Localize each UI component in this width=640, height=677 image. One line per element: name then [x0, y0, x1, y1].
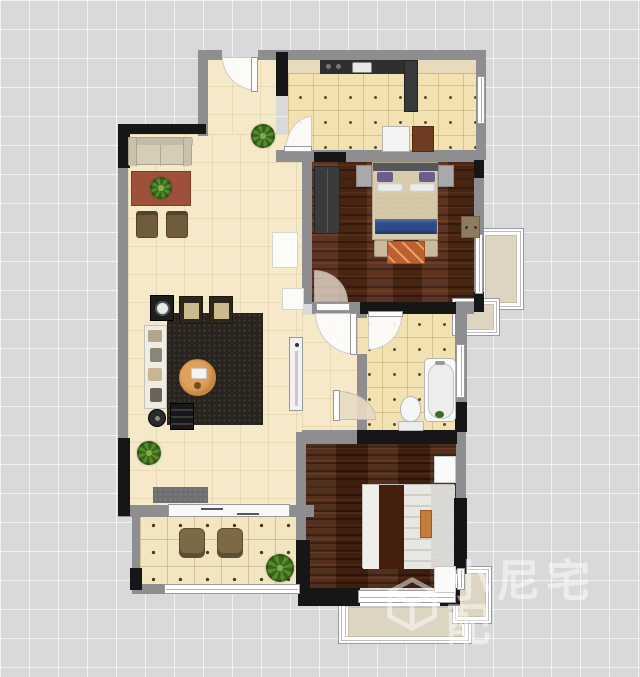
toilet: [398, 396, 422, 430]
wall-black-kitchen-divider: [276, 52, 288, 96]
dresser-knob: [474, 226, 477, 229]
shelf-item: [150, 348, 162, 362]
stove-burner: [326, 64, 331, 69]
balcony-window: [164, 584, 300, 594]
bed2-sheet: [363, 485, 379, 569]
nightstand-bed2-bottom: [434, 566, 456, 593]
plant-living-top: [251, 124, 275, 148]
doormat: [153, 487, 208, 503]
plant-balcony: [266, 554, 294, 582]
bedroom2-right-window: [457, 568, 465, 590]
balcony-sliding-door: [168, 504, 290, 517]
kitchen-door-leaf: [284, 146, 312, 152]
stool-1: [136, 211, 158, 238]
dresser-master: [461, 216, 480, 238]
round-dining-table: [179, 359, 216, 396]
wardrobe-seam: [327, 169, 328, 233]
table-plate: [191, 368, 207, 379]
wall-bath-left: [357, 354, 367, 432]
wardrobe: [314, 166, 340, 234]
sofa: [128, 137, 192, 165]
toilet-bowl: [400, 396, 421, 422]
bay-window-master-right-fill: [485, 235, 517, 303]
floorplan-canvas: 小尼宅配: [0, 0, 640, 677]
bedroom2-door-leaf: [333, 390, 340, 421]
shelf-item: [148, 368, 162, 381]
hall-cabinet-1: [272, 232, 298, 268]
chair-cushion: [184, 303, 199, 319]
wicker-chair-1: [179, 528, 205, 558]
bed-second: [362, 484, 454, 568]
pillow-white-left: [377, 183, 403, 192]
piano-cabinet: [170, 403, 194, 430]
hallway-door-leaf: [350, 313, 357, 355]
bathroom-window: [456, 344, 465, 398]
bed2-pillows: [431, 485, 455, 569]
kitchen-sink: [352, 62, 372, 73]
plant-living-bottom: [137, 441, 161, 465]
bathtub-faucet: [435, 361, 445, 365]
wall-bedroom1-left: [302, 160, 312, 304]
coffee-table-plant: [150, 177, 172, 199]
sofa-seam: [160, 145, 161, 166]
fridge: [412, 126, 434, 152]
nightstand-master-right: [438, 165, 454, 187]
dining-chair-1: [179, 296, 203, 324]
wall-black-bath-right: [455, 402, 467, 432]
radiator-valve: [295, 343, 299, 347]
wall-top-main: [258, 50, 486, 60]
bathroom-door-leaf: [368, 311, 403, 317]
floor-lamp: [148, 409, 166, 427]
wall-living-bottom-right-stub: [288, 505, 314, 517]
wall-black-bedroom1-right-top: [474, 160, 484, 178]
wall-black-living-top: [118, 124, 206, 134]
pillow-purple-left: [377, 172, 393, 182]
wall-black-left-lower: [118, 438, 130, 516]
wall-black-bedroom2-left: [296, 540, 310, 590]
radiator: [289, 337, 303, 411]
kitchen-side-cabinet: [404, 60, 418, 112]
wall-bedroom2-top-left: [302, 430, 357, 444]
kitchen-counter-dark: [320, 60, 406, 74]
nightstand-master-left: [356, 165, 372, 187]
audio-dial: [155, 301, 170, 316]
dresser-knob: [465, 226, 468, 229]
radiator-fin: [295, 351, 298, 406]
wall-black-balcony-left: [130, 568, 142, 590]
bay-window-bedroom2-bottom-fill: [348, 607, 462, 637]
table-item: [194, 382, 201, 389]
wall-black-bedroom2-top: [357, 430, 457, 444]
bathtub-plant: [435, 411, 444, 418]
entry-door-leaf: [251, 57, 258, 92]
kitchen-window: [477, 76, 485, 124]
wall-black-bedroom2-bottom-left: [298, 588, 360, 606]
audio-unit: [150, 295, 174, 321]
bed-blue-runner: [375, 219, 437, 234]
hall-cabinet-2: [282, 288, 304, 310]
bed2-tray: [420, 510, 432, 538]
shelf-item: [148, 330, 162, 342]
lamp-center: [155, 416, 160, 421]
stool-2: [166, 211, 188, 238]
wall-left: [118, 132, 128, 440]
master-bedroom-door-leaf: [316, 303, 350, 311]
pillow-white-right: [409, 183, 435, 192]
bed-master: [372, 162, 438, 240]
toilet-tank: [398, 421, 424, 431]
dining-chair-2: [209, 296, 233, 324]
nightstand-bed2-top: [434, 456, 456, 483]
master-bedroom-window: [475, 234, 483, 294]
sofa-arm-left: [129, 138, 137, 166]
wall-black-bedroom1-right-bottom: [474, 292, 484, 312]
bedside-rug: [387, 241, 425, 264]
bed2-headboard: [454, 498, 467, 568]
bathtub: [424, 358, 456, 422]
washing-machine: [382, 126, 410, 152]
bed-comforter: [375, 193, 437, 219]
shelf-item: [150, 388, 162, 402]
bed2-runner: [379, 485, 404, 569]
sofa-arm-right: [183, 138, 191, 166]
stove-burner: [336, 64, 341, 69]
display-shelf: [144, 325, 167, 409]
wicker-chair-2: [217, 528, 243, 558]
chair-cushion: [214, 303, 229, 319]
wall-black-bedroom1-top: [314, 152, 346, 162]
bed-headboard: [373, 163, 439, 171]
pillow-purple-right: [419, 172, 435, 182]
